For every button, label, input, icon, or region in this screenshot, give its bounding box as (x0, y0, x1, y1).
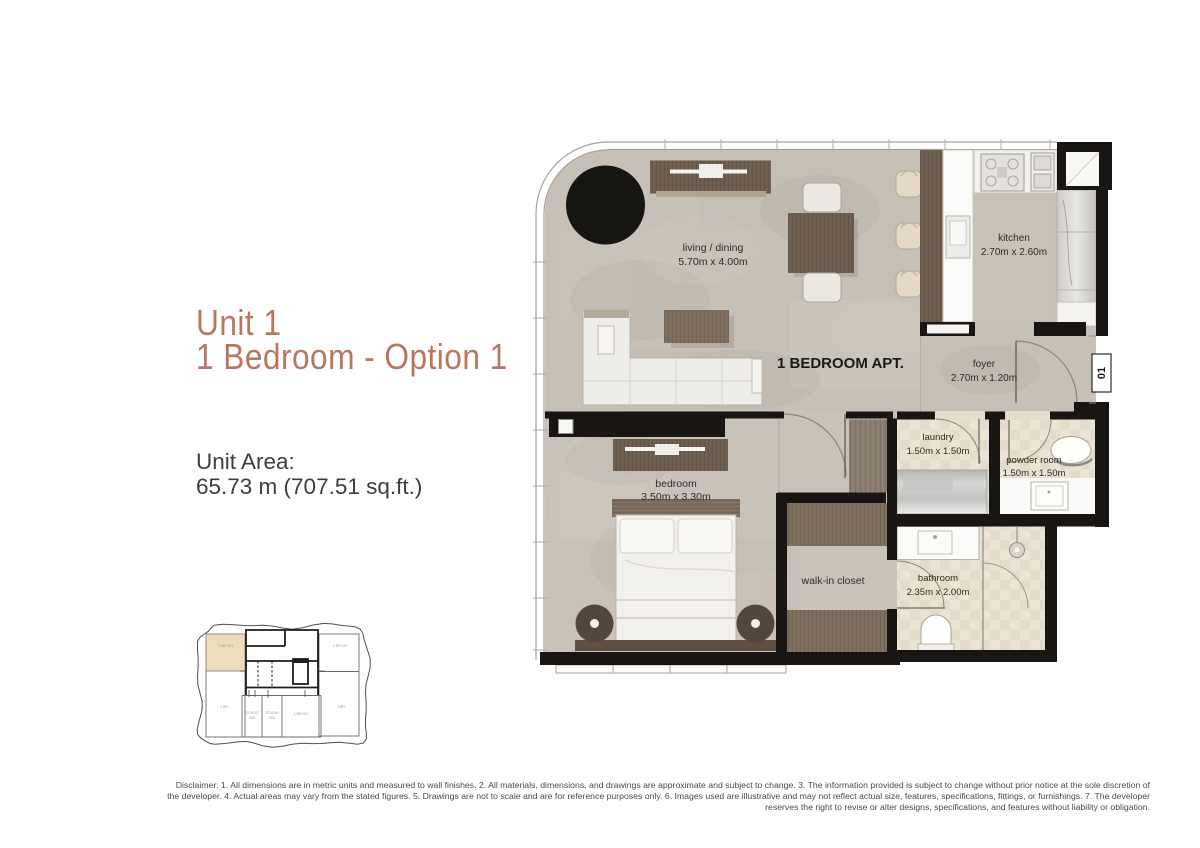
svg-text:2.35m x 2.00m: 2.35m x 2.00m (907, 587, 970, 598)
svg-text:2.70m x 2.60m: 2.70m x 2.60m (981, 247, 1047, 258)
svg-text:1 BR 001: 1 BR 001 (219, 644, 234, 648)
svg-text:bathroom: bathroom (918, 573, 958, 584)
svg-text:3.50m x 3.30m: 3.50m x 3.30m (641, 491, 711, 503)
svg-text:bedroom: bedroom (655, 478, 697, 490)
svg-text:STUDIO: STUDIO (245, 711, 259, 715)
svg-text:01: 01 (1096, 367, 1108, 379)
svg-text:5.70m x 4.00m: 5.70m x 4.00m (678, 256, 748, 268)
svg-text:walk-in closet: walk-in closet (800, 575, 864, 587)
svg-text:1 BEDROOM APT.: 1 BEDROOM APT. (777, 355, 904, 372)
svg-text:1.50m x 1.50m: 1.50m x 1.50m (1003, 468, 1066, 479)
svg-text:2.70m x 1.20m: 2.70m x 1.20m (951, 373, 1017, 384)
svg-text:living / dining: living / dining (683, 242, 744, 254)
svg-text:006: 006 (269, 716, 275, 720)
svg-text:1 BR 010: 1 BR 010 (333, 644, 348, 648)
svg-text:005: 005 (249, 716, 255, 720)
svg-text:powder room: powder room (1006, 455, 1062, 466)
svg-text:2 BR: 2 BR (337, 705, 345, 709)
svg-text:STUDIO: STUDIO (265, 711, 279, 715)
svg-text:laundry: laundry (922, 432, 953, 443)
svg-text:2 BR: 2 BR (220, 705, 228, 709)
svg-text:kitchen: kitchen (998, 233, 1030, 244)
svg-text:1.50m x 1.50m: 1.50m x 1.50m (907, 446, 970, 457)
svg-text:foyer: foyer (973, 359, 996, 370)
svg-text:1 BR 007: 1 BR 007 (294, 712, 309, 716)
